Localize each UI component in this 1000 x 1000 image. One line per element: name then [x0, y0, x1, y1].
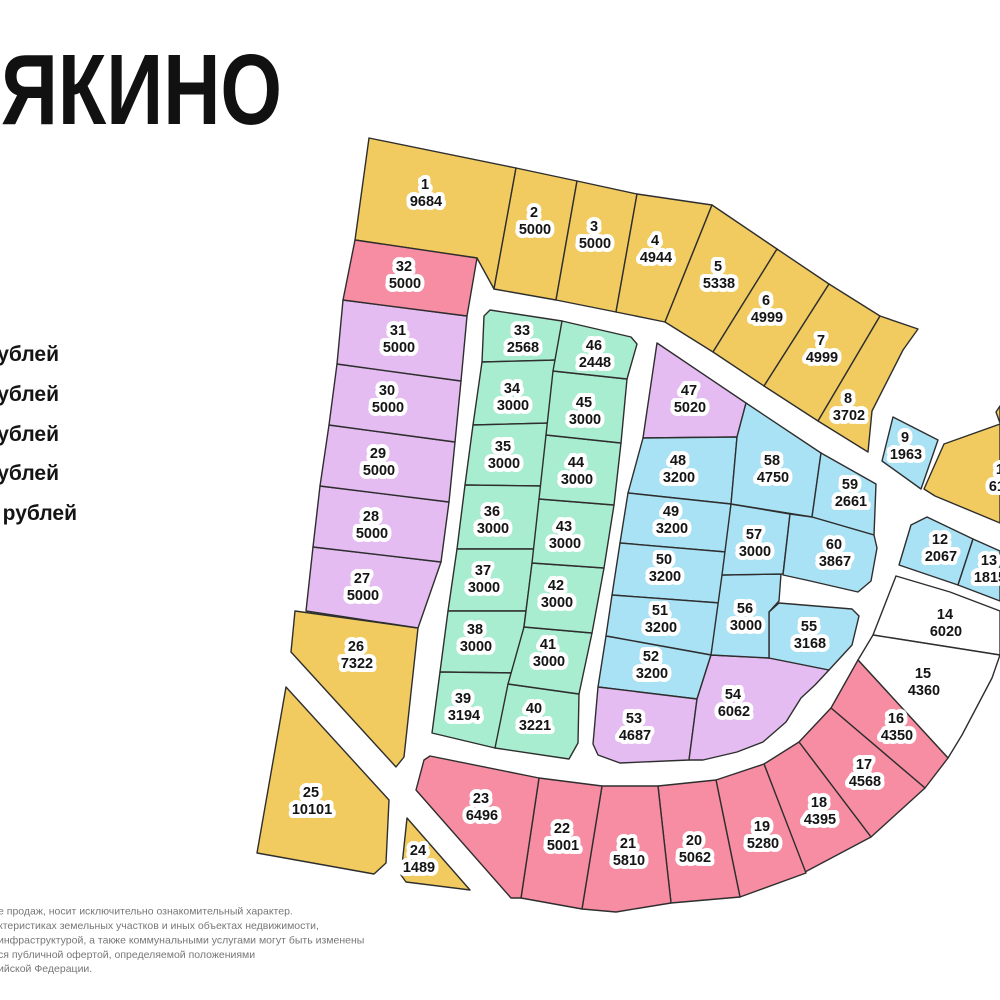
svg-text:е продаж, носит исключительно: е продаж, носит исключительно ознакомите…	[0, 906, 293, 918]
svg-text:ЯКИНО: ЯКИНО	[1, 34, 282, 146]
svg-text:инфраструктурой, а также комму: инфраструктурой, а также коммунальными у…	[0, 935, 364, 947]
svg-text:от 1 000 000 рублей: от 1 000 000 рублей	[0, 343, 59, 366]
svg-text:ся публичной офертой, определя: ся публичной офертой, определяемой полож…	[0, 949, 255, 961]
svg-text:от 1 200 000 рублей: от 1 200 000 рублей	[0, 383, 59, 406]
svg-text:от 2 000 000 рублей: от 2 000 000 рублей	[0, 462, 59, 485]
svg-text:от 1 500 000 рублей: от 1 500 000 рублей	[0, 423, 59, 446]
svg-text:ктеристиках земельных участков: ктеристиках земельных участков и иных об…	[0, 920, 319, 932]
svg-text:от 2 500 000 рублей: от 2 500 000 рублей	[0, 502, 77, 525]
svg-text:ийской Федерации.: ийской Федерации.	[0, 963, 92, 975]
